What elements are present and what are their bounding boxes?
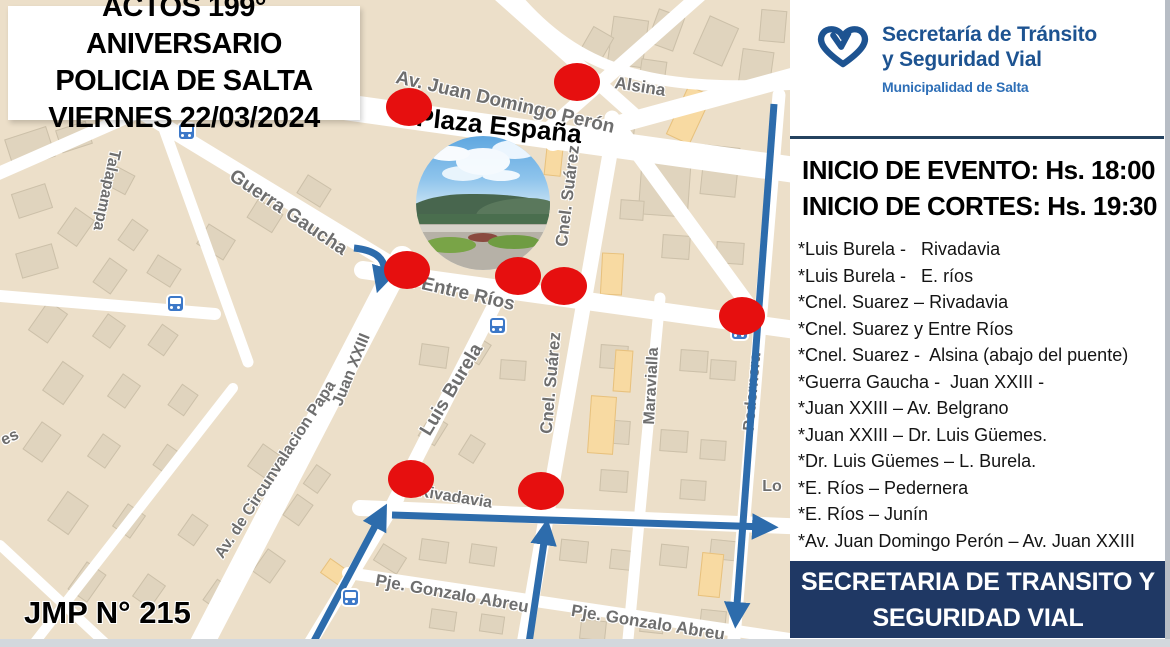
- info-panel: Secretaría de Tránsito y Seguridad Vial …: [790, 0, 1170, 647]
- closure-dot: [384, 251, 430, 289]
- closure-item: *Cnel. Suarez y Entre Ríos: [798, 316, 1135, 343]
- route-rivadavia-east-arrow: [392, 515, 768, 527]
- footer-banner: SECRETARIA DE TRANSITO Y SEGURIDAD VIAL: [790, 561, 1166, 638]
- route-juan-xxiii-north-arrow: [313, 513, 382, 643]
- logo-subtitle: Municipalidad de Salta: [882, 75, 1097, 100]
- frame-edge-bottom: [0, 639, 1170, 647]
- event-title-box: ACTOS 199° ANIVERSARIO POLICIA DE SALTA …: [8, 6, 360, 120]
- closure-dot: [541, 267, 587, 305]
- footer-line2: SEGURIDAD VIAL: [790, 600, 1166, 636]
- closure-item: *E. Ríos – Pedernera: [798, 475, 1135, 502]
- frame-edge-right: [1165, 0, 1170, 647]
- logo-name-line2: y Seguridad Vial: [882, 47, 1097, 72]
- heart-outline-icon: [816, 22, 870, 72]
- closure-dot: [495, 257, 541, 295]
- schedule: INICIO DE EVENTO: Hs. 18:00 INICIO DE CO…: [802, 152, 1157, 224]
- closure-dot: [518, 472, 564, 510]
- closure-item: *Luis Burela - E. ríos: [798, 263, 1135, 290]
- event-start-time: INICIO DE EVENTO: Hs. 18:00: [802, 152, 1157, 188]
- closure-item: *Av. Juan Domingo Perón – Av. Juan XXIII: [798, 528, 1135, 555]
- bus-stop-icon: [341, 588, 360, 607]
- event-title-line2: POLICIA DE SALTA: [8, 63, 360, 100]
- closure-item: *E. Ríos – Junín: [798, 501, 1135, 528]
- bus-stop-icon: [166, 294, 185, 313]
- panel-divider: [790, 136, 1164, 139]
- closure-item: *Juan XXIII – Dr. Luis Güemes.: [798, 422, 1135, 449]
- closure-item: *Cnel. Suarez – Rivadavia: [798, 289, 1135, 316]
- closure-item: *Guerra Gaucha - Juan XXIII -: [798, 369, 1135, 396]
- route-suarez-north-arrow: [529, 529, 546, 643]
- route-pedernera-south-arrow: [736, 104, 774, 618]
- logo-name-line1: Secretaría de Tránsito: [882, 22, 1097, 47]
- closure-item: *Luis Burela - Rivadavia: [798, 236, 1135, 263]
- closure-item: *Cnel. Suarez - Alsina (abajo del puente…: [798, 342, 1135, 369]
- logo: Secretaría de Tránsito y Seguridad Vial …: [816, 22, 1097, 100]
- closure-item: *Juan XXIII – Av. Belgrano: [798, 395, 1135, 422]
- jmp-number: JMP N° 215: [24, 595, 191, 631]
- bus-stop-icon: [488, 316, 507, 335]
- event-title-line1: ACTOS 199° ANIVERSARIO: [8, 0, 360, 63]
- closure-item: *Dr. Luis Güemes – L. Burela.: [798, 448, 1135, 475]
- closure-dot: [554, 63, 600, 101]
- footer-line1: SECRETARIA DE TRANSITO Y: [790, 564, 1166, 600]
- event-title-line3: VIERNES 22/03/2024: [8, 100, 360, 137]
- closure-dot: [386, 88, 432, 126]
- closure-dot: [388, 460, 434, 498]
- route-guerra-gaucha-turn-arrow: [354, 248, 384, 283]
- closure-list: *Luis Burela - Rivadavia*Luis Burela - E…: [798, 236, 1135, 554]
- closures-start-time: INICIO DE CORTES: Hs. 19:30: [802, 188, 1157, 224]
- closure-dot: [719, 297, 765, 335]
